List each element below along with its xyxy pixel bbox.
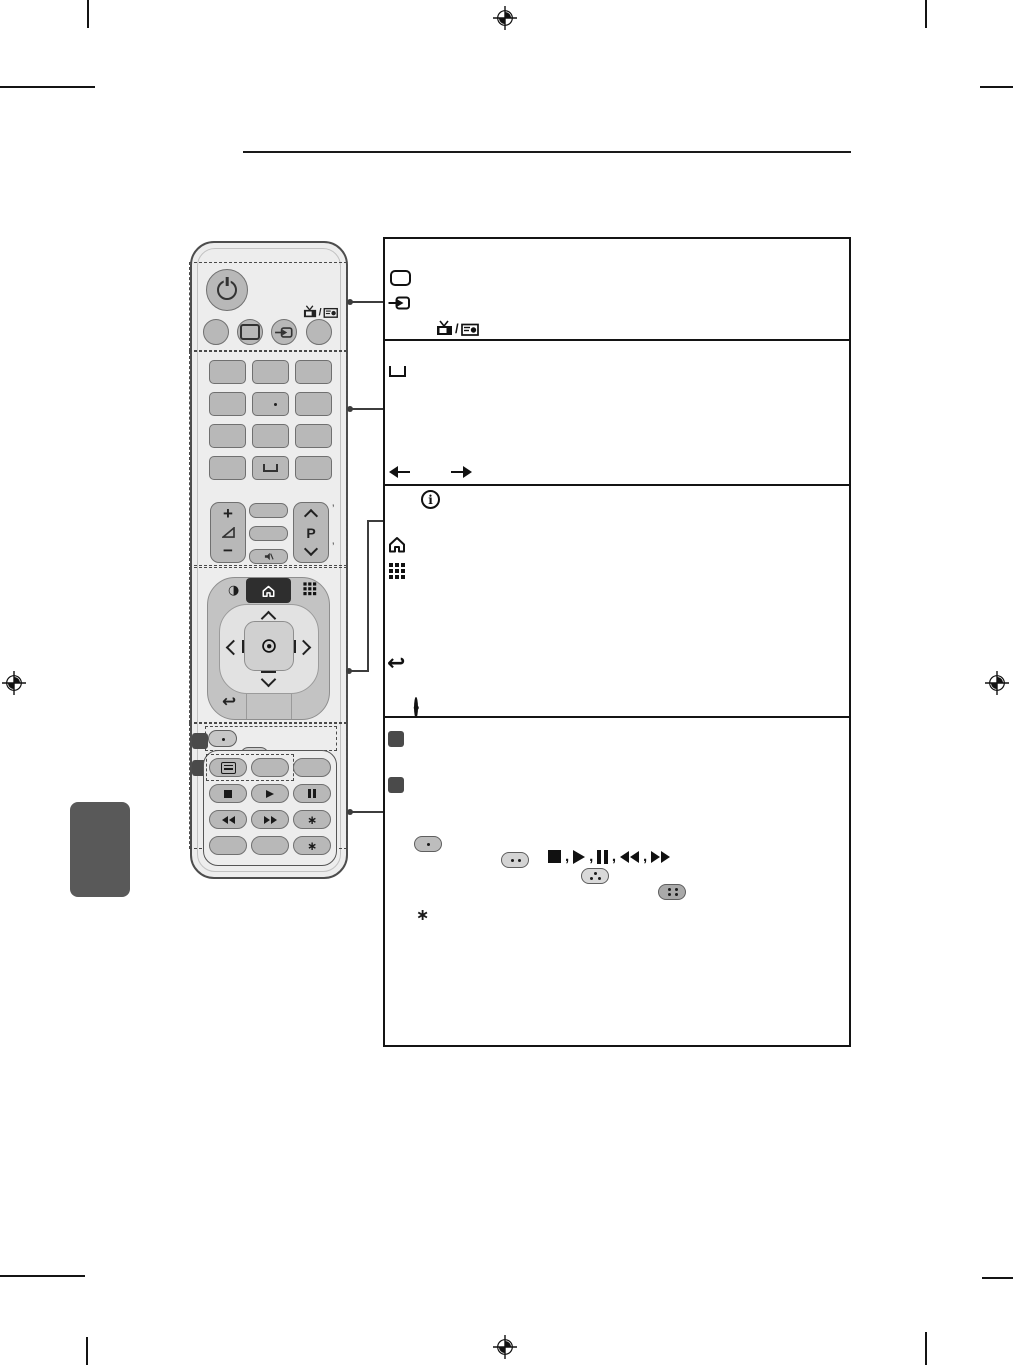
svg-text:/: / xyxy=(455,321,459,336)
home-icon-desc xyxy=(387,535,407,554)
callout-line-2 xyxy=(351,408,383,410)
extra-button-1 xyxy=(209,836,247,855)
subtitle-button xyxy=(293,758,331,777)
callout-line-3a xyxy=(350,670,368,672)
tv-radio-icon: / xyxy=(436,320,480,336)
mute-button xyxy=(249,549,288,564)
rec-button: ∗ xyxy=(293,810,331,829)
apps-grid-icon-desc xyxy=(389,563,393,567)
play-button xyxy=(251,784,289,803)
digit-2-button xyxy=(252,360,289,384)
volume-up-label: + xyxy=(223,508,233,520)
digit-4-button xyxy=(209,392,246,416)
page-tick-bottom: ’ xyxy=(332,541,334,553)
tv-radio-button xyxy=(306,319,332,345)
stop-icon xyxy=(224,790,232,798)
space-icon xyxy=(263,464,278,472)
crop-mark-bottom-right-h xyxy=(982,1277,1013,1279)
info-icon: i xyxy=(421,490,440,509)
crop-mark-top-left-h xyxy=(0,86,95,88)
volume-wedge-icon xyxy=(222,527,235,538)
crop-mark-top-right-h xyxy=(980,86,1013,88)
back-arrow-icon: ↩ xyxy=(387,650,405,676)
digit-5-button xyxy=(252,392,289,416)
nav-divider-right xyxy=(291,694,292,719)
programme-up-icon xyxy=(304,509,318,523)
fast-forward-icon xyxy=(264,816,277,824)
digit-6-button xyxy=(295,392,332,416)
text-icon xyxy=(221,762,236,774)
arrow-right-icon xyxy=(451,466,472,478)
pause-icon xyxy=(308,789,315,798)
digit-3-button xyxy=(295,360,332,384)
mute-icon xyxy=(264,552,274,561)
home-icon xyxy=(261,584,276,598)
manual-page: / + − P ’ ’ ◑ xyxy=(0,0,1013,1365)
play-glyph-icon xyxy=(573,850,585,864)
volume-down-label: − xyxy=(223,545,233,557)
crop-mark-bottom-right-v xyxy=(925,1332,927,1365)
tv-button xyxy=(237,319,263,345)
callout-line-1 xyxy=(351,301,383,303)
fast-forward-button xyxy=(251,810,289,829)
registration-mark-right xyxy=(985,671,1009,695)
nav-right-bar xyxy=(294,640,296,653)
registration-mark-bottom xyxy=(493,1335,517,1359)
home-button xyxy=(246,578,291,603)
nav-divider-left xyxy=(246,694,247,719)
stop-glyph-icon xyxy=(548,850,561,863)
play-icon xyxy=(266,790,274,798)
space-glyph-icon xyxy=(389,366,406,377)
section-divider-rule xyxy=(243,151,851,153)
programme-label: P xyxy=(306,525,315,541)
fav-button xyxy=(249,503,288,518)
energy-saving-button xyxy=(203,319,229,345)
callout-line-4 xyxy=(351,811,383,813)
green-button-desc xyxy=(501,852,529,868)
crop-mark-bottom-left-v xyxy=(86,1337,88,1365)
stop-button xyxy=(209,784,247,803)
arrow-left-icon xyxy=(389,466,410,478)
input-button xyxy=(271,319,297,345)
programme-down-icon xyxy=(304,542,318,556)
rewind-icon xyxy=(222,816,235,824)
digit-8-button xyxy=(252,424,289,448)
red-button-desc xyxy=(414,836,442,852)
page-tick-top: ’ xyxy=(332,503,334,515)
comma-3: , xyxy=(612,848,616,865)
info-letter: i xyxy=(428,494,433,506)
tv-icon xyxy=(240,324,260,340)
description-box-2 xyxy=(383,339,851,486)
power-button xyxy=(206,269,248,311)
list-button xyxy=(209,456,246,480)
ok-button xyxy=(244,621,294,671)
pause-glyph-icon xyxy=(597,850,608,864)
comma-2: , xyxy=(589,848,593,865)
digit-9-button xyxy=(295,424,332,448)
callout-line-3c xyxy=(367,520,383,522)
digit-1-button xyxy=(209,360,246,384)
input-icon xyxy=(275,326,293,339)
asterisk-note: ∗ xyxy=(416,905,429,924)
tv-radio-mini-icon: / xyxy=(303,305,339,318)
digit-7-button xyxy=(209,424,246,448)
marker-2 xyxy=(388,777,404,793)
ok-icon xyxy=(262,639,276,653)
quick-menu-icon: ◑ xyxy=(228,583,239,598)
apps-grid-icon xyxy=(303,582,306,585)
crop-mark-top-left-v xyxy=(87,0,89,28)
power-icon xyxy=(217,280,237,300)
extra-button-3: ∗ xyxy=(293,836,331,855)
remote-marker-1 xyxy=(192,733,208,749)
text-button xyxy=(209,758,247,777)
digit-5-nub-icon xyxy=(274,403,277,406)
crop-mark-bottom-left-h xyxy=(0,1275,85,1277)
pause-button xyxy=(293,784,331,803)
comma-1: , xyxy=(565,848,569,865)
registration-mark-left xyxy=(2,671,26,695)
svg-text:/: / xyxy=(319,307,322,318)
yellow-button-desc xyxy=(581,868,609,884)
red-button xyxy=(208,730,237,747)
registration-mark-top xyxy=(493,6,517,30)
marker-1 xyxy=(388,731,404,747)
fast-forward-glyph-icon xyxy=(651,851,670,863)
extra-button-2 xyxy=(251,836,289,855)
blue-button-desc xyxy=(658,884,686,900)
info-small-button xyxy=(249,526,288,541)
volume-rocker: + − xyxy=(210,502,246,563)
tv-outline-icon xyxy=(390,270,411,286)
ok-dot-icon xyxy=(414,697,418,718)
q-view-button xyxy=(295,456,332,480)
comma-4: , xyxy=(643,848,647,865)
rewind-glyph-icon xyxy=(620,851,639,863)
digit-0-button xyxy=(252,456,289,480)
description-box-4 xyxy=(383,716,851,1047)
programme-rocker: P xyxy=(293,502,329,563)
description-box-3 xyxy=(383,484,851,718)
rewind-button xyxy=(209,810,247,829)
crop-mark-top-right-v xyxy=(925,0,927,28)
playback-sequence: , , , , xyxy=(548,848,670,865)
t-opt-button xyxy=(251,758,289,777)
asterisk-icon-2: ∗ xyxy=(307,839,317,853)
page-edge-tab xyxy=(70,802,130,897)
callout-line-3b xyxy=(367,520,369,672)
asterisk-icon: ∗ xyxy=(307,813,317,827)
input-arrow-icon xyxy=(388,295,411,311)
back-button-icon: ↩ xyxy=(222,692,236,712)
